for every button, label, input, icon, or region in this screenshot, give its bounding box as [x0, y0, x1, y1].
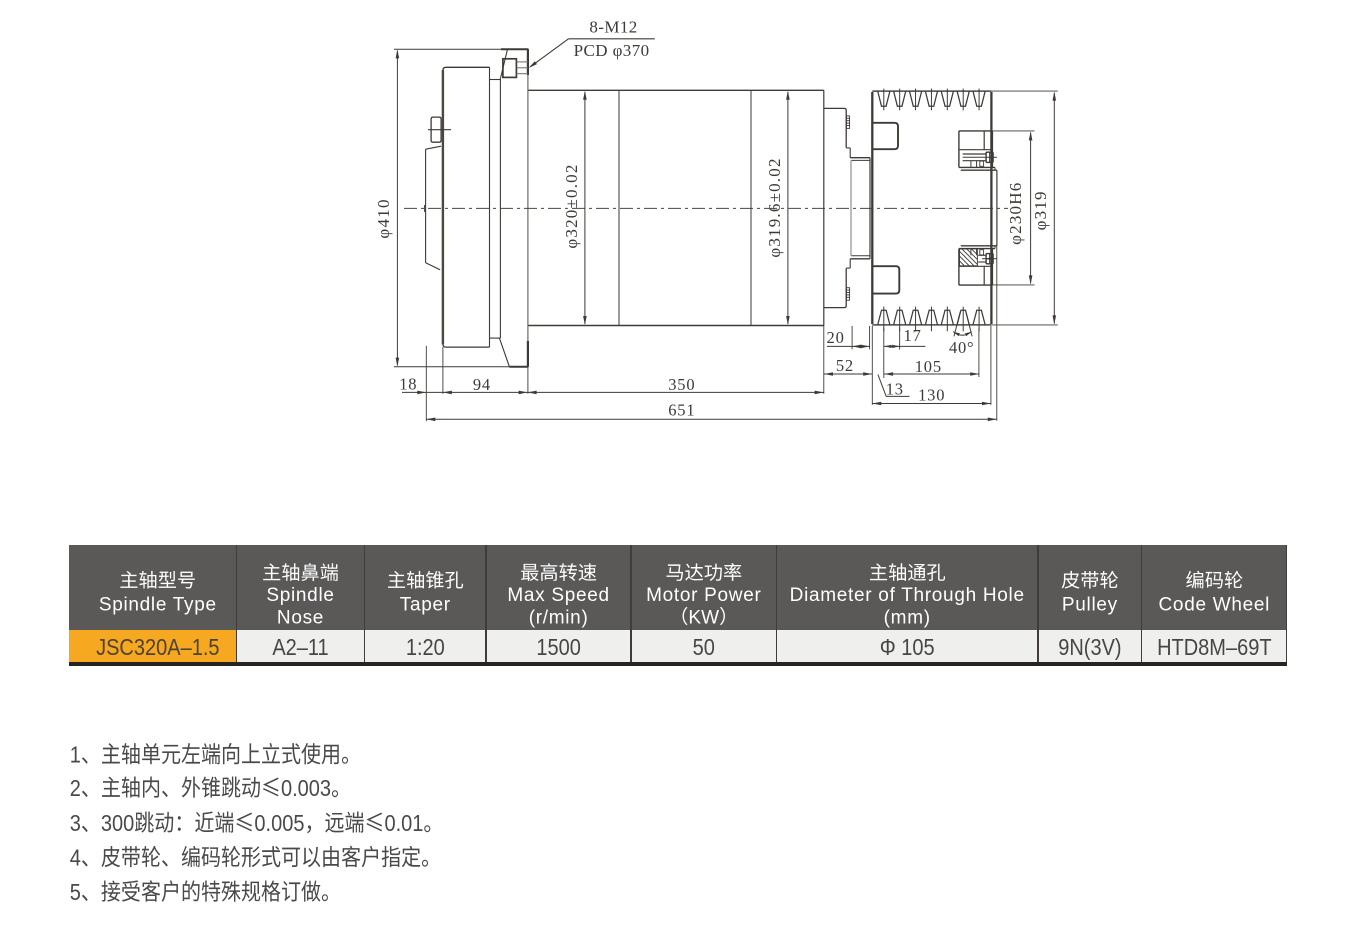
- svg-text:40°: 40°: [949, 338, 975, 357]
- svg-text:φ410: φ410: [374, 198, 393, 239]
- svg-text:HTD8M–69T: HTD8M–69T: [1157, 634, 1271, 661]
- svg-text:0.005: 0.005: [254, 809, 304, 836]
- svg-text:9N(3V): 9N(3V): [1058, 634, 1121, 661]
- svg-text:130: 130: [918, 386, 945, 405]
- svg-text:50: 50: [693, 634, 715, 661]
- svg-text:4: 4: [70, 844, 81, 871]
- svg-text:Motor Power: Motor Power: [646, 585, 761, 606]
- svg-text:φ319: φ319: [1031, 190, 1050, 230]
- svg-text:1: 1: [70, 741, 81, 768]
- svg-text:350: 350: [668, 375, 695, 394]
- svg-text:13: 13: [886, 379, 904, 398]
- svg-text:Nose: Nose: [277, 607, 324, 628]
- svg-text:5: 5: [70, 878, 81, 905]
- svg-text:18: 18: [399, 374, 417, 393]
- svg-text:300: 300: [101, 809, 134, 836]
- svg-text:52: 52: [836, 356, 854, 375]
- svg-text:8-M12: 8-M12: [589, 17, 637, 36]
- svg-text:A2–11: A2–11: [272, 634, 328, 661]
- svg-text:Diameter of Through Hole: Diameter of Through Hole: [790, 585, 1025, 606]
- svg-text:17: 17: [904, 326, 922, 345]
- svg-text:Pulley: Pulley: [1062, 595, 1118, 616]
- svg-text:Spindle: Spindle: [266, 585, 334, 606]
- svg-text:PCD φ370: PCD φ370: [574, 41, 650, 60]
- svg-text:φ320±0.02: φ320±0.02: [562, 163, 581, 248]
- svg-text:Φ 105: Φ 105: [880, 634, 935, 661]
- svg-text:0.01: 0.01: [385, 809, 424, 836]
- svg-text:1500: 1500: [536, 634, 581, 661]
- svg-text:Spindle Type: Spindle Type: [99, 595, 217, 616]
- svg-text:94: 94: [473, 375, 491, 394]
- svg-text:φ230H6: φ230H6: [1006, 182, 1025, 245]
- svg-text:20: 20: [827, 328, 845, 347]
- svg-text:JSC320A–1.5: JSC320A–1.5: [96, 634, 219, 661]
- svg-text:1:20: 1:20: [406, 634, 445, 661]
- svg-text:φ319.6±0.02: φ319.6±0.02: [765, 157, 784, 257]
- svg-text:3: 3: [70, 809, 81, 836]
- svg-text:Code Wheel: Code Wheel: [1159, 595, 1271, 616]
- svg-text:Max Speed: Max Speed: [507, 585, 609, 606]
- svg-text:105: 105: [915, 357, 942, 376]
- svg-text:(r/min): (r/min): [529, 607, 589, 628]
- svg-text:KW: KW: [688, 607, 719, 628]
- svg-text:0.003: 0.003: [281, 774, 331, 801]
- svg-text:(mm): (mm): [884, 607, 931, 628]
- svg-text:2: 2: [70, 774, 81, 801]
- svg-text:651: 651: [668, 401, 695, 420]
- svg-text:Taper: Taper: [400, 595, 451, 616]
